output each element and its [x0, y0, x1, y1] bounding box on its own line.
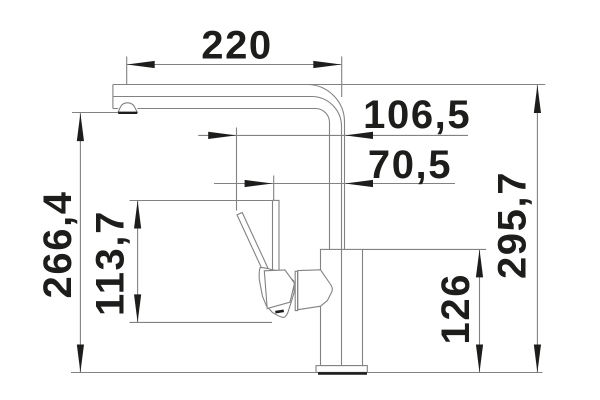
svg-text:106,5: 106,5 [363, 93, 471, 137]
svg-text:70,5: 70,5 [368, 143, 452, 187]
svg-text:220: 220 [201, 24, 273, 68]
svg-text:295,7: 295,7 [491, 171, 535, 279]
svg-text:126: 126 [434, 273, 478, 345]
svg-text:113,7: 113,7 [88, 210, 132, 316]
svg-text:266,4: 266,4 [36, 190, 80, 298]
